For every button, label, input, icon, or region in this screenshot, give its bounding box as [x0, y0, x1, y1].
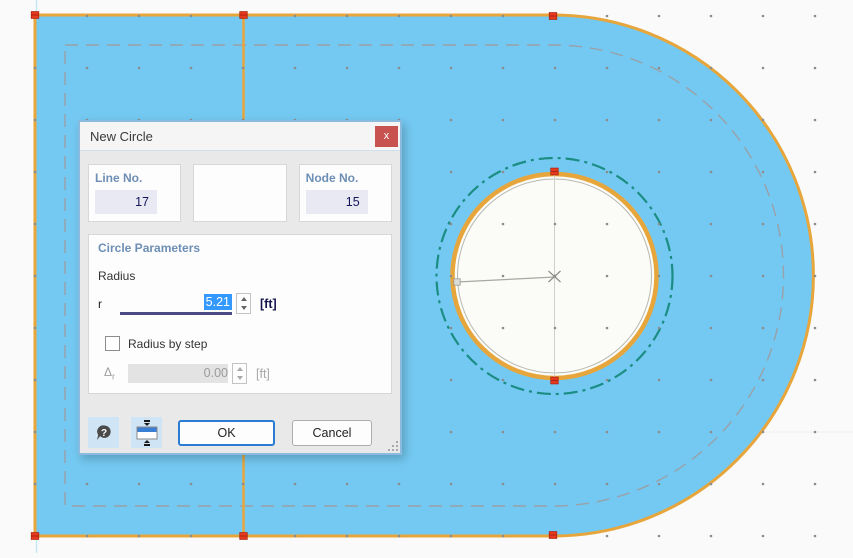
delta-r-symbol: Δr	[104, 365, 128, 381]
radius-by-step-label: Radius by step	[128, 337, 207, 351]
delta-spinner	[232, 363, 247, 384]
selection-handle[interactable]	[551, 168, 559, 175]
down-arrow-icon	[237, 376, 243, 380]
radius-row: r 5.21 [ft]	[98, 292, 382, 315]
resize-grip[interactable]	[388, 441, 398, 451]
help-button[interactable]: ?	[88, 417, 119, 448]
up-arrow-icon	[237, 367, 243, 371]
circle-parameters-group: Circle Parameters Radius r 5.21 [ft] Rad…	[88, 234, 392, 394]
help-balloon-icon: ?	[94, 423, 114, 443]
group-title: Circle Parameters	[98, 241, 382, 255]
dialog-buttons-row: ? OK Cancel	[88, 417, 392, 448]
dialog-title: New Circle	[90, 129, 153, 144]
r-symbol: r	[98, 297, 120, 311]
down-arrow-icon	[241, 306, 247, 310]
radius-input[interactable]: 5.21	[120, 292, 232, 315]
radius-label: Radius	[98, 269, 382, 283]
radius-by-step-row: Radius by step	[105, 336, 382, 351]
selection-handle[interactable]	[31, 533, 39, 540]
delta-input: 0.00	[128, 364, 228, 383]
spinner-up-button[interactable]	[237, 294, 250, 304]
delta-unit: [ft]	[256, 367, 270, 381]
collapse-panel-icon	[135, 420, 159, 446]
radius-selected-text: 5.21	[204, 294, 232, 310]
selection-handle[interactable]	[240, 12, 248, 19]
spinner-down-button[interactable]	[237, 304, 250, 314]
node-no-label: Node No.	[306, 171, 385, 185]
selection-handle[interactable]	[549, 532, 557, 539]
selection-handle[interactable]	[240, 533, 248, 540]
node-no-value[interactable]: 15	[306, 190, 368, 214]
radius-end-handle[interactable]	[454, 279, 460, 285]
node-no-box: Node No. 15	[299, 164, 392, 222]
up-arrow-icon	[241, 297, 247, 301]
dialog-titlebar[interactable]: New Circle x	[80, 122, 400, 151]
dialog-body: Line No. 17 Node No. 15 Circle Parameter…	[80, 151, 400, 448]
delta-down-button	[233, 374, 246, 384]
cancel-button[interactable]: Cancel	[292, 420, 372, 446]
selection-handle[interactable]	[31, 12, 39, 19]
radius-by-step-checkbox[interactable]	[105, 336, 120, 351]
selection-handle[interactable]	[551, 377, 559, 384]
line-no-box: Line No. 17	[88, 164, 181, 222]
delta-up-button	[233, 364, 246, 374]
line-no-label: Line No.	[95, 171, 174, 185]
collapse-dialog-button[interactable]	[131, 417, 162, 448]
radius-spinner	[236, 293, 251, 314]
delta-row: Δr 0.00 [ft]	[98, 362, 382, 385]
empty-box	[193, 164, 286, 222]
new-circle-dialog: New Circle x Line No. 17 Node No. 15 Cir…	[78, 120, 402, 455]
radius-unit: [ft]	[260, 297, 277, 311]
close-button[interactable]: x	[375, 126, 398, 147]
line-no-value[interactable]: 17	[95, 190, 157, 214]
selection-handle[interactable]	[549, 13, 557, 20]
svg-text:?: ?	[100, 428, 106, 439]
number-boxes-row: Line No. 17 Node No. 15	[88, 164, 392, 222]
ok-button[interactable]: OK	[178, 420, 275, 446]
